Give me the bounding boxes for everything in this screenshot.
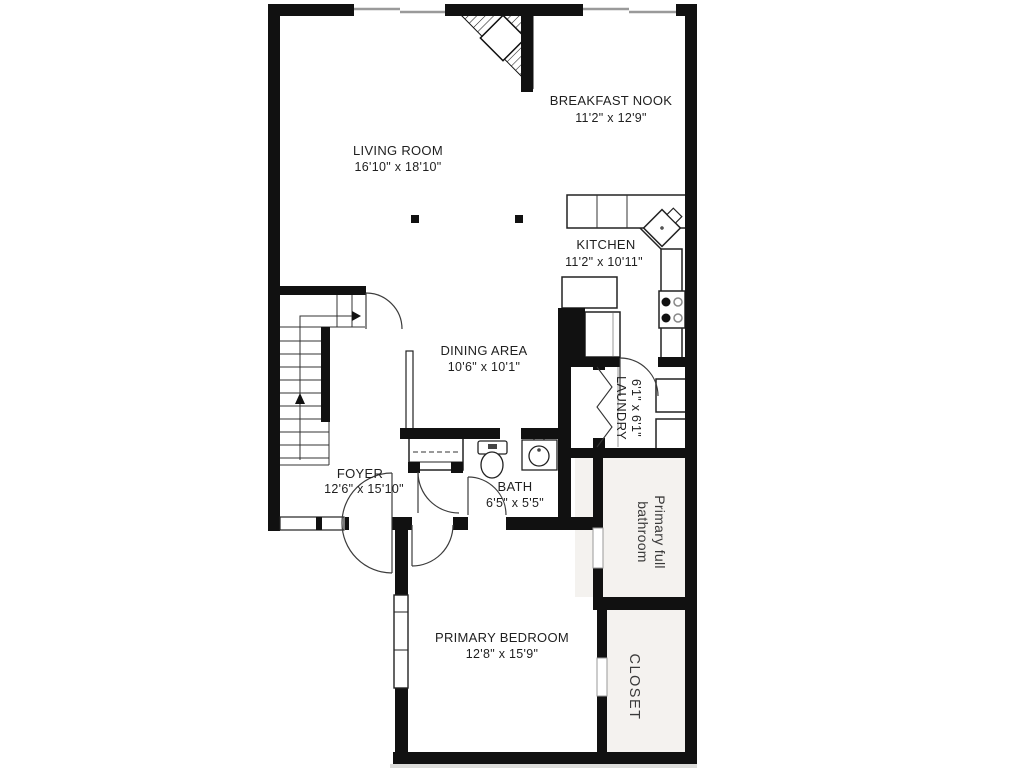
kitchen-peninsula-counter [562,277,617,308]
foyer-closet-door-swing [418,472,459,513]
window-bedroom [394,595,408,688]
wall-laundry-bottom [558,448,697,458]
closet-floor [607,610,685,752]
room-dims-breakfast-nook: 11'2" x 12'9" [575,111,647,125]
wall-hall-left [558,359,571,528]
wall-front-seg [345,517,349,530]
room-label-primary-bathroom-line2: bathroom [635,501,651,563]
dining-half-wall [406,351,413,437]
photo-edge [390,764,697,768]
post [411,215,419,223]
wall-front-seg [392,517,412,530]
window-top-4 [629,3,676,17]
stair-arrow-up [295,393,305,404]
wall-front-seg [506,517,600,530]
room-label-kitchen: KITCHEN [576,237,635,252]
floor-plan-svg: LIVING ROOM 16'10" x 18'10" BREAKFAST NO… [0,0,1023,768]
room-dims-kitchen: 11'2" x 10'11" [565,255,643,269]
room-label-foyer: FOYER [337,466,383,481]
wall-stair-top [268,286,366,295]
room-label-primary-bathroom-line1: Primary full [652,495,668,569]
room-dims-laundry: 6'1" x 6'1" [629,379,643,437]
room-label-laundry-group: 6'1" x 6'1" LAUNDRY [614,376,643,440]
window-foyer-divider [316,517,322,530]
room-label-primary-bathroom-group: Primary full bathroom [635,495,668,569]
wall-closet-stub-right [451,462,463,473]
bath-sink-drain [537,448,541,452]
stove [659,291,685,328]
room-dims-living-room: 16'10" x 18'10" [355,160,442,174]
room-dims-primary-bedroom: 12'8" x 15'9" [466,647,538,661]
wall-closet-left [597,696,607,752]
bath-fixtures [478,436,557,478]
wall-right [685,4,697,764]
room-label-closet: CLOSET [626,653,642,720]
room-label-primary-bedroom: PRIMARY BEDROOM [435,630,569,645]
post [515,215,523,223]
room-label-breakfast-nook: BREAKFAST NOOK [550,93,672,108]
room-label-bath: BATH [498,479,533,494]
kitchen-pantry [585,312,620,357]
primary-bathroom-door-opening [593,528,603,568]
wall-laundry-top-right [658,357,697,367]
room-label-laundry: LAUNDRY [614,376,629,440]
stove-burner [674,298,682,306]
wall-bottom [393,752,697,764]
wall-closet-left [597,610,607,658]
wall-bathroom-closet-divider [593,597,697,610]
wall-bifold-stub-top [593,359,605,370]
stove-burner [662,298,671,307]
stair-door-swing [366,293,402,329]
room-label-closet-group: CLOSET [626,653,642,720]
wall-front-seg [453,517,468,530]
wall-closet-stub-left [408,462,420,473]
toilet-bowl [481,452,503,478]
wall-kitchen-divider [558,308,585,359]
room-dims-bath: 6'5" x 5'5" [486,496,544,510]
closet-opening [597,658,607,696]
room-dims-foyer: 12'6" x 15'10" [324,482,404,496]
wall-fireplace-stub [521,14,533,92]
toilet-button [488,444,497,449]
wall-bath-top-left [400,428,500,439]
stove-burner [662,314,671,323]
room-label-dining-area: DINING AREA [440,343,527,358]
wall-stair-mid [321,327,330,422]
window-foyer [280,517,344,530]
wall-primary-bathroom-left [593,458,603,528]
window-top-2 [400,3,445,17]
laundry-bifold-doors [597,367,612,447]
wall-left [268,4,280,531]
room-label-living-room: LIVING ROOM [353,143,443,158]
wall-bath-top-right [521,428,558,439]
room-dims-dining-area: 10'6" x 10'1" [448,360,520,374]
stove-burner [674,314,682,322]
bedroom-door-swing [412,525,453,566]
floor-plan-image: LIVING ROOM 16'10" x 18'10" BREAKFAST NO… [0,0,1023,768]
stair-arrow-right [352,311,361,321]
